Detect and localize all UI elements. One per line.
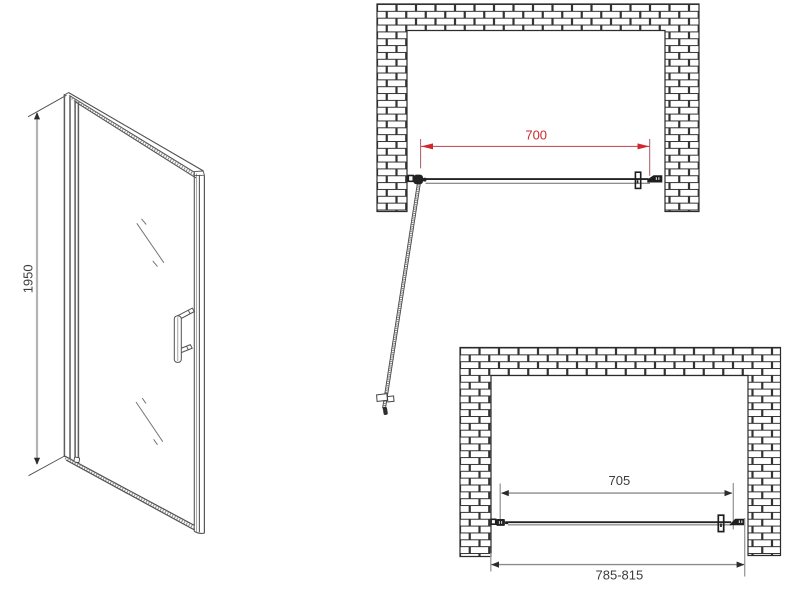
- svg-text:705: 705: [609, 473, 631, 488]
- svg-text:785-815: 785-815: [596, 568, 644, 583]
- svg-text:1950: 1950: [21, 264, 36, 293]
- svg-text:700: 700: [525, 128, 547, 143]
